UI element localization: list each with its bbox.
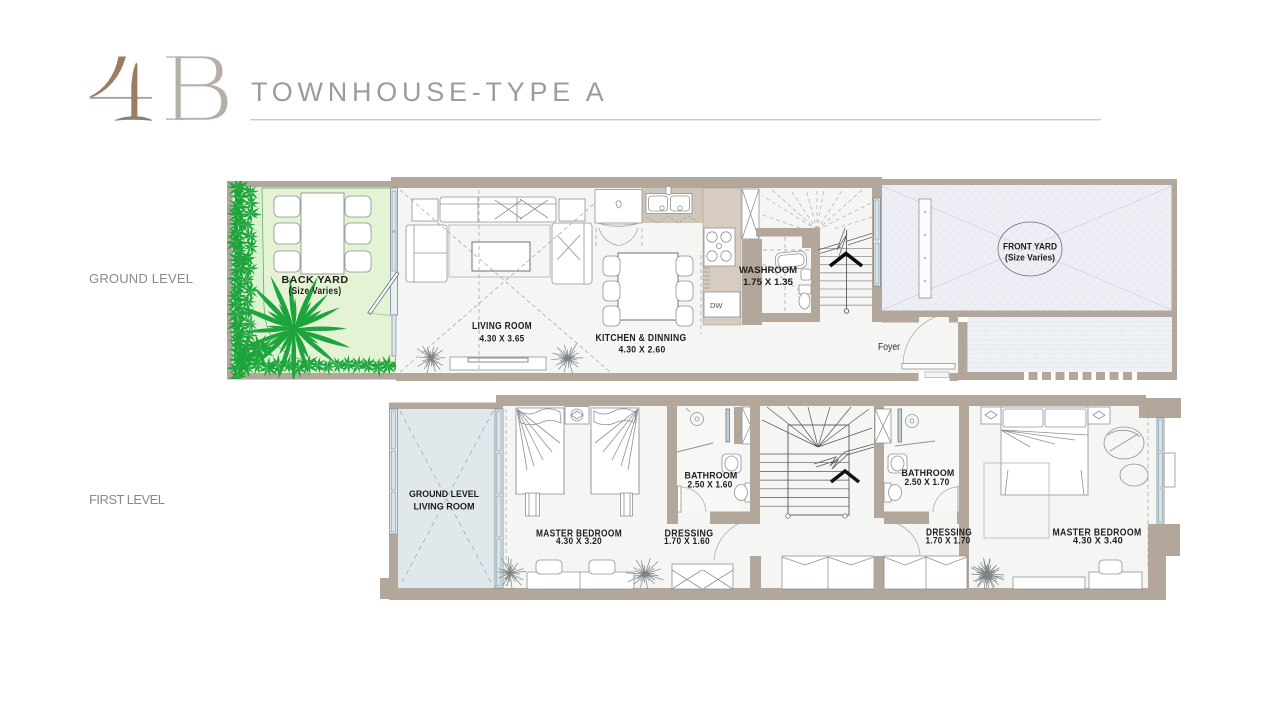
svg-text:DW: DW [710,301,723,310]
svg-text:FIRST LEVEL: FIRST LEVEL [89,492,165,507]
svg-text:GROUND LEVEL: GROUND LEVEL [409,489,479,499]
svg-text:LIVING ROOM: LIVING ROOM [414,502,475,512]
svg-text:Foyer: Foyer [878,342,901,353]
svg-text:2.50 X 1.60: 2.50 X 1.60 [688,480,733,490]
svg-text:4.30 X 3.20: 4.30 X 3.20 [556,536,602,546]
svg-text:(Size Varies): (Size Varies) [289,286,342,297]
svg-text:1.70 X 1.60: 1.70 X 1.60 [664,536,710,546]
svg-text:4.30 X 2.60: 4.30 X 2.60 [619,345,666,355]
svg-text:FRONT YARD: FRONT YARD [1003,242,1057,252]
svg-text:4.30 X 3.65: 4.30 X 3.65 [480,334,525,344]
svg-text:1.70 X 1.70: 1.70 X 1.70 [926,536,971,546]
svg-text:GROUND LEVEL: GROUND LEVEL [89,271,193,286]
svg-text:4.30 X 3.40: 4.30 X 3.40 [1073,536,1123,546]
svg-text:WASHROOM: WASHROOM [739,265,797,275]
svg-text:BACK YARD: BACK YARD [282,275,349,286]
svg-text:TOWNHOUSE-TYPE A: TOWNHOUSE-TYPE A [251,77,607,107]
svg-text:KITCHEN & DINNING: KITCHEN & DINNING [596,333,687,344]
svg-text:2.50 X 1.70: 2.50 X 1.70 [905,477,950,487]
svg-text:LIVING ROOM: LIVING ROOM [472,321,532,332]
svg-text:(Size Varies): (Size Varies) [1005,253,1055,263]
svg-text:1.75 X 1.35: 1.75 X 1.35 [743,277,793,287]
